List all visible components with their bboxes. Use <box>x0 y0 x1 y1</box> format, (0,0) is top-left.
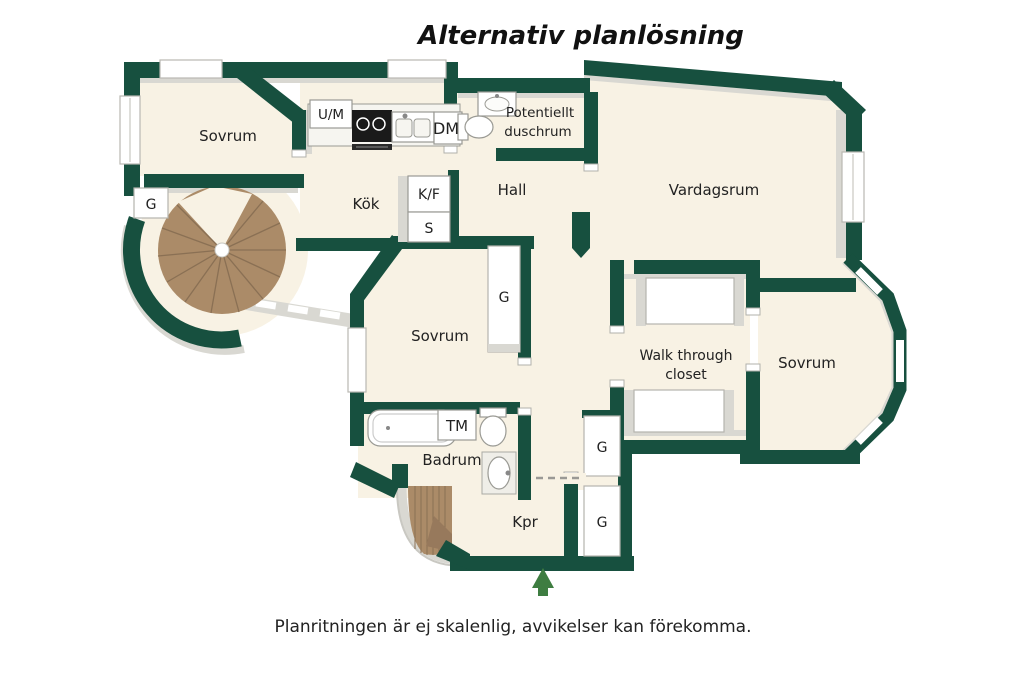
window-bedroom-top <box>160 60 222 78</box>
room-label-kitchen: Kök <box>353 195 380 213</box>
appliance-label-washer-dryer: U/M <box>318 107 344 123</box>
wardrobe-label-corridor-lower: G <box>597 515 608 531</box>
wardrobe-label-bedroom-middle: G <box>499 290 510 306</box>
bathroom-toilet-icon <box>480 408 506 446</box>
room-label-bathroom: Badrum <box>422 451 481 469</box>
window-bedroom-middle <box>348 328 366 392</box>
spiral-staircase-icon <box>158 186 286 314</box>
floor-plan-drawing: Alternativ planlösning Sovrum G Kök U/M … <box>0 0 1024 683</box>
room-label-entry-corridor: Kpr <box>512 513 538 531</box>
room-label-bedroom-middle: Sovrum <box>411 327 469 345</box>
bathroom-sink-icon <box>482 452 516 494</box>
appliance-label-dishwasher: DM <box>433 119 459 138</box>
room-label-bedroom-right: Sovrum <box>778 354 836 372</box>
page-title: Alternativ planlösning <box>416 21 744 51</box>
room-label-potential-shower-line1: Potentiellt <box>506 105 574 121</box>
stove-icon <box>352 110 392 150</box>
appliance-label-washing-machine: TM <box>445 417 468 435</box>
disclaimer-text: Planritningen är ej skalenlig, avvikelse… <box>274 617 751 637</box>
room-label-bedroom-top-left: Sovrum <box>199 127 257 145</box>
room-label-hall: Hall <box>498 181 527 199</box>
kitchen-sink-icon <box>392 112 434 142</box>
room-label-walk-through-closet-line2: closet <box>665 367 707 383</box>
room-label-walk-through-closet-line1: Walk through <box>640 348 733 364</box>
appliance-label-fridge-freezer: K/F <box>418 187 440 203</box>
wardrobe-label-top-left: G <box>146 197 157 213</box>
room-label-potential-shower-line2: duschrum <box>504 124 571 140</box>
room-label-living-room: Vardagsrum <box>669 181 760 199</box>
window-kitchen <box>388 60 446 78</box>
wardrobe-label-corridor-upper: G <box>597 440 608 456</box>
floor-plan-page: Alternativ planlösning Sovrum G Kök U/M … <box>0 0 1024 683</box>
appliance-label-pantry: S <box>425 221 434 237</box>
shower-toilet-icon <box>458 114 493 140</box>
entrance-arrow-icon <box>532 568 554 596</box>
